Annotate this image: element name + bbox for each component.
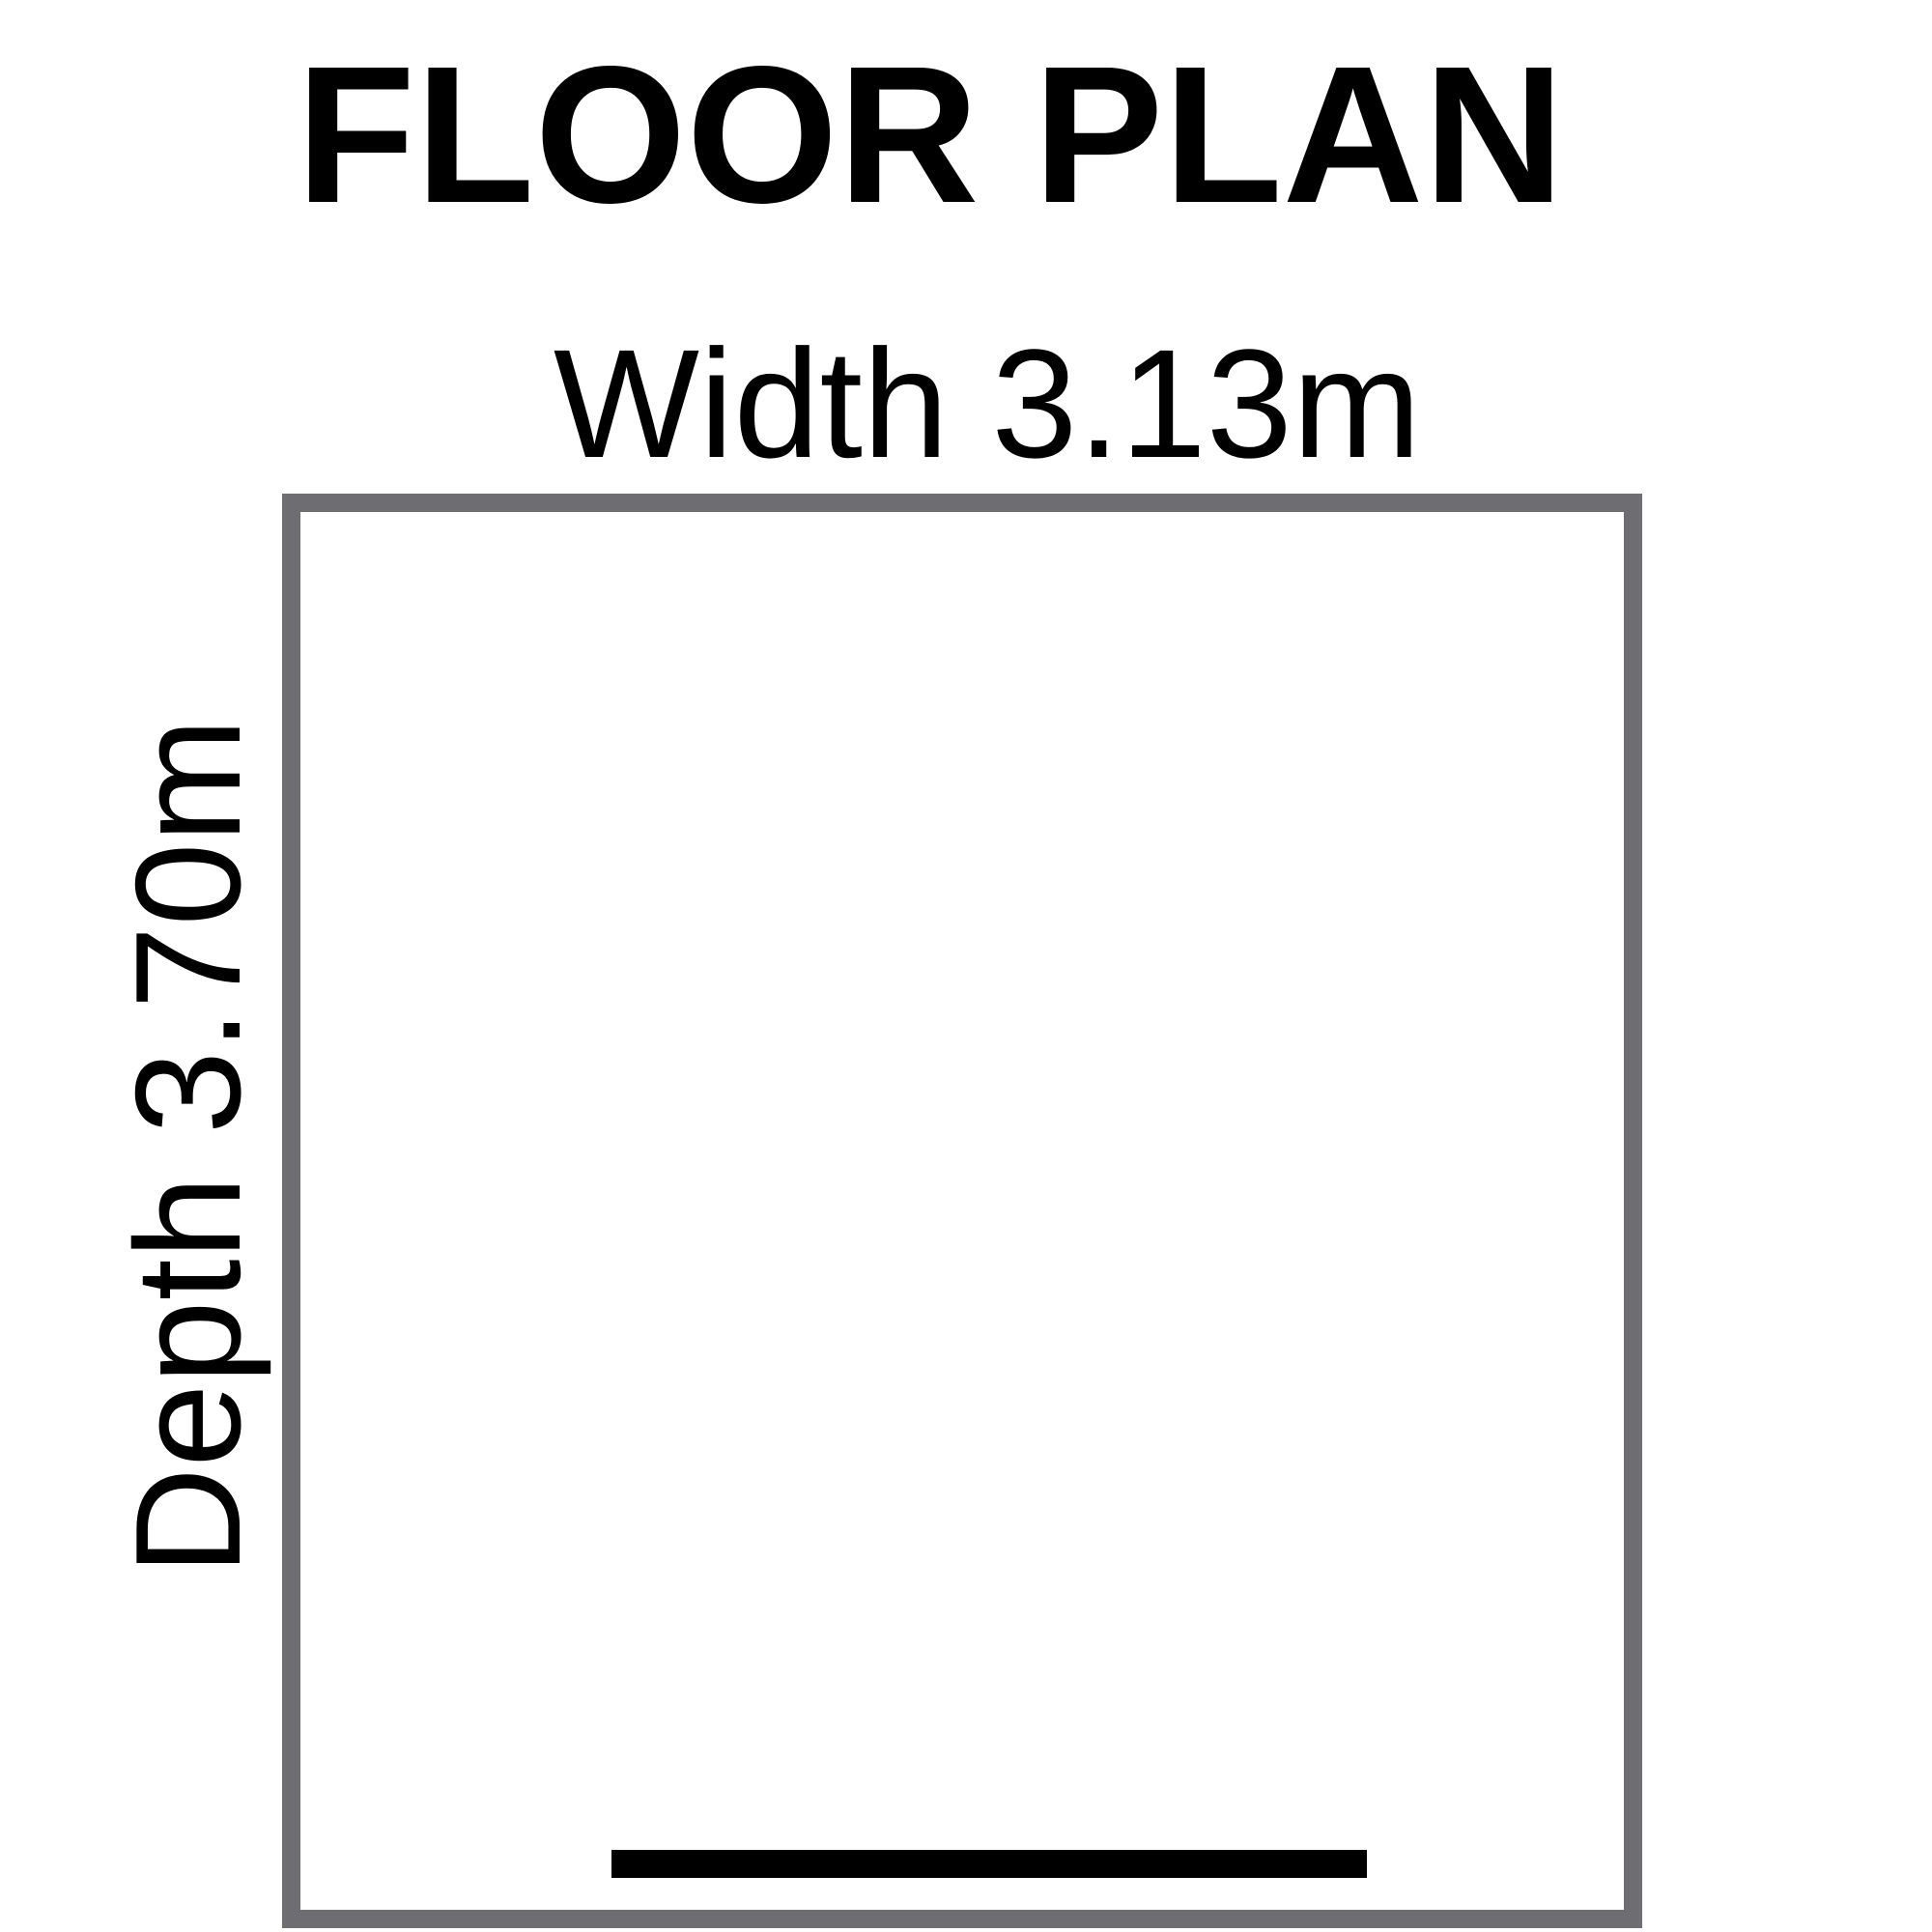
scale-bar: [611, 1850, 1367, 1878]
floor-plan-diagram: FLOOR PLAN Width 3.13m Depth 3.70m: [0, 0, 1932, 1932]
room-outline: [282, 494, 1642, 1928]
width-dimension-label: Width 3.13m: [282, 327, 1642, 481]
page-title: FLOOR PLAN: [0, 37, 1861, 232]
depth-dimension-label: Depth 3.70m: [111, 712, 266, 1581]
